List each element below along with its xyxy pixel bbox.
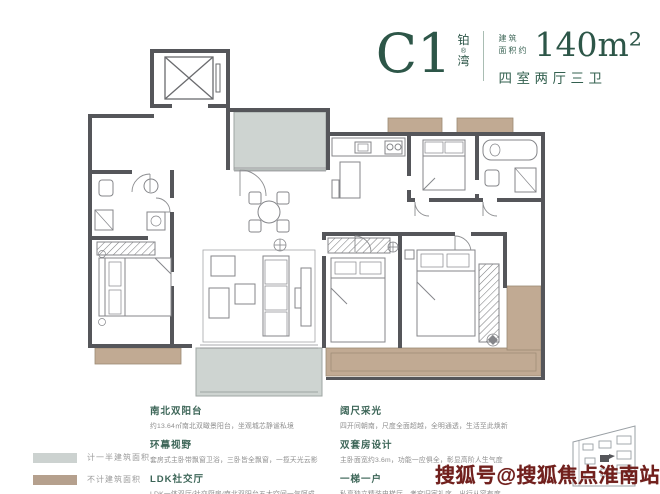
feature-ldk-lounge: LDK社交厅 LDK一体双厅/社交厨房/南北双阳台五大空间一气呵成: [150, 471, 336, 494]
north-balcony: [234, 112, 326, 170]
south-balcony: [196, 348, 322, 396]
kitchen-counter-icon: [332, 138, 405, 198]
toilet-icon-left-bath: [95, 179, 165, 230]
bed-icon-bedroom4: [405, 250, 499, 346]
sofa-icon: [203, 239, 315, 342]
bay-window-top-2: [457, 118, 513, 133]
elevator-shaft-icon: [165, 57, 220, 99]
dining-table-icon: [249, 192, 289, 232]
floorplan-page: C1 铂 ® 湾 建筑 面积约 140m² 四室两厅三卫: [0, 0, 660, 494]
legend-item-no-area: 不计建筑面积: [33, 474, 150, 485]
bed-icon-suite: [423, 140, 465, 190]
feature-dual-balcony: 南北双阳台 约13.64㎡南北双瞰景阳台，坐观城芯静谧私境: [150, 403, 336, 430]
legend-item-half-area: 计一半建筑面积: [33, 452, 150, 463]
feature-wide-lighting: 阔尺采光 四开间朝南，尺度全面超越，全明通透，生活至此焕新: [340, 403, 570, 430]
legend: 计一半建筑面积 不计建筑面积: [33, 452, 150, 494]
bathtub-icon: [483, 140, 537, 192]
feature-column-left: 南北双阳台 约13.64㎡南北双瞰景阳台，坐观城芯静谧私境 环幕视野 套房式主卧…: [150, 403, 336, 494]
bay-window-top-1: [388, 118, 442, 133]
walls: [88, 49, 545, 380]
legend-swatch-half-area-icon: [33, 453, 77, 463]
feature-panoramic-view: 环幕视野 套房式主卧带飘窗卫浴，三卧皆全飘窗，一揽天光云影: [150, 437, 336, 464]
watermark: 搜狐号@搜狐焦点淮南站: [435, 459, 660, 488]
bay-window-bottom-left: [95, 348, 181, 364]
bed-icon-master: [97, 242, 171, 326]
floor-plan-drawing: [55, 44, 560, 402]
legend-swatch-no-area-icon: [33, 475, 77, 485]
bed-icon-bedroom3: [328, 238, 398, 342]
